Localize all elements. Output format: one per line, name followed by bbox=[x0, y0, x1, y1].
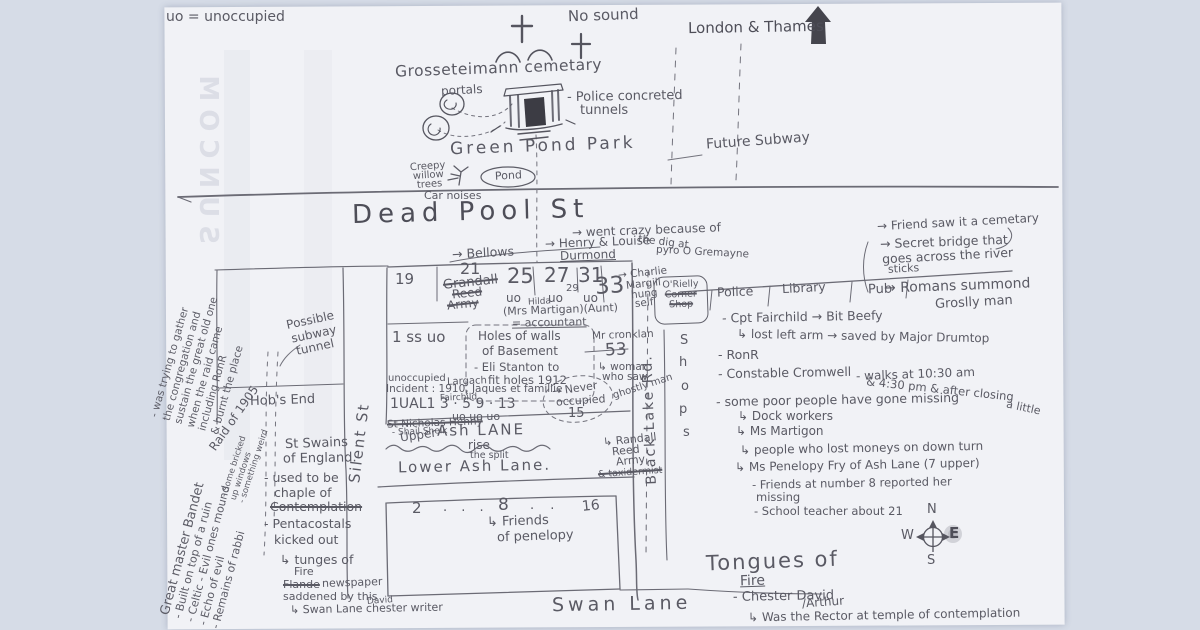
friends-of-penelope-note: ↳ Friends bbox=[487, 514, 549, 530]
pentacostals-note-2: kicked out bbox=[274, 533, 338, 546]
shops-letter: h bbox=[679, 356, 687, 370]
sticks-note: sticks bbox=[888, 262, 920, 275]
dots: · · · bbox=[443, 505, 489, 519]
hand-drawn-map: { "watermark": "SUNCOM", "legend": "uo =… bbox=[0, 0, 1200, 630]
dead-pool-st-label: Dead Pool St bbox=[352, 196, 590, 230]
no-sound-note: No sound bbox=[568, 7, 639, 25]
swan-writer-note: ↳ Swan Lane chester writer bbox=[290, 602, 443, 616]
police-note: - Constable Cromwell bbox=[718, 365, 851, 381]
flande-struck: Flande bbox=[283, 579, 320, 591]
london-thames-label: London & Thames bbox=[688, 19, 824, 37]
shops-letter: p bbox=[679, 403, 687, 417]
shop-name-3: Shop bbox=[655, 299, 707, 311]
hobs-end-label: Hob's End bbox=[250, 393, 316, 409]
tongues-fire-word: Fire bbox=[740, 574, 766, 590]
tongues-of-fire-title: Tongues of bbox=[706, 548, 840, 575]
house-25: 25 bbox=[507, 265, 534, 287]
house-53: 53 bbox=[605, 340, 628, 359]
swan-lane-label: Swan Lane bbox=[552, 593, 692, 616]
uo-mark: uo bbox=[506, 292, 521, 305]
police-label: Police bbox=[717, 284, 754, 299]
house-2: 2 bbox=[412, 501, 422, 517]
pub-label: Pub bbox=[868, 283, 893, 298]
house-8: 8 bbox=[498, 496, 509, 514]
chaple-note-2: chaple of bbox=[274, 486, 332, 499]
house-16: 16 bbox=[581, 498, 600, 515]
police-note: - Friends at number 8 reported her bbox=[752, 475, 952, 491]
contemplation-struck: Contemplation bbox=[270, 500, 362, 513]
durmond-note: Durmond bbox=[560, 248, 616, 263]
shops-letter: o bbox=[681, 380, 689, 394]
library-label: Library bbox=[782, 280, 826, 296]
tunges-of-fire-note: ↳ tunges of bbox=[280, 553, 353, 566]
shops-letter: s bbox=[683, 426, 690, 440]
accountant-note: = accountant bbox=[512, 316, 587, 329]
saddened-note: saddened by this bbox=[283, 591, 377, 603]
police-note: ↳ Ms Martigon bbox=[736, 425, 824, 438]
pentacostals-note: - Pentacostals bbox=[264, 517, 351, 530]
police-tunnels-note-2: tunnels bbox=[580, 104, 628, 118]
compass-w: W bbox=[901, 529, 914, 543]
house-19: 19 bbox=[395, 272, 414, 288]
friends-of-penelope-note-2: of penelopy bbox=[497, 529, 574, 545]
shops-letter: S bbox=[680, 334, 688, 348]
st-swains-note: St Swains bbox=[285, 436, 348, 452]
police-note: - RonR bbox=[718, 348, 759, 361]
police-note: - Cpt Fairchild → Bit Beefy bbox=[722, 309, 883, 325]
house-15: 15 bbox=[568, 407, 585, 421]
ss-uo-note: 1 ss uo bbox=[392, 330, 445, 346]
newspaper-note: newspaper bbox=[322, 576, 383, 590]
basement-note-2: of Basement bbox=[482, 345, 558, 358]
compass-n: N bbox=[927, 503, 937, 517]
police-note: ↳ Dock workers bbox=[738, 410, 833, 423]
lower-ash-lane-label: Lower Ash Lane. bbox=[398, 458, 551, 477]
portals-label: portals bbox=[441, 83, 483, 98]
house-29: 29 bbox=[566, 284, 579, 295]
fire-word: Fire bbox=[294, 566, 314, 578]
legend-note: uo = unoccupied bbox=[166, 10, 285, 25]
orielly-corner-shop: O'Rielly Corner Shop bbox=[653, 275, 709, 325]
chaple-note: - used to be bbox=[264, 471, 339, 484]
basement-note: Holes of walls bbox=[478, 330, 561, 343]
police-note: missing bbox=[756, 491, 800, 503]
st-swains-note-2: of England. bbox=[283, 451, 357, 466]
charlie-note-4: self bbox=[634, 297, 654, 310]
pond-label: Pond bbox=[495, 169, 523, 182]
compass-s: S bbox=[927, 554, 935, 568]
compass-e: E bbox=[949, 526, 959, 542]
police-note: - School teacher about 21 bbox=[754, 505, 903, 517]
eli-stanton-note: - Eli Stanton to bbox=[474, 361, 559, 373]
